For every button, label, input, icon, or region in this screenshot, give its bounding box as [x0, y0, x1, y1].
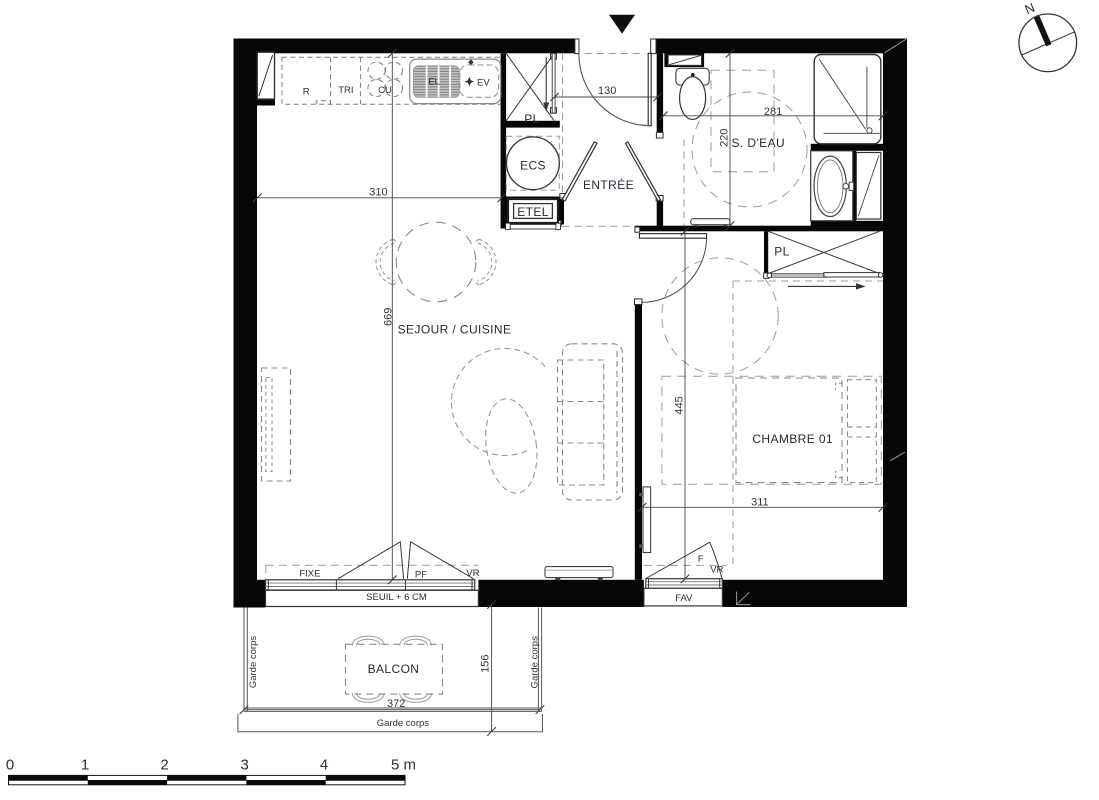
- svg-text:FAV: FAV: [675, 593, 693, 604]
- svg-text:SEUIL + 6 CM: SEUIL + 6 CM: [366, 592, 427, 603]
- svg-text:SEJOUR / CUISINE: SEJOUR / CUISINE: [398, 323, 512, 337]
- svg-text:310: 310: [369, 187, 387, 199]
- svg-text:ECS: ECS: [520, 159, 546, 173]
- svg-text:CHAMBRE 01: CHAMBRE 01: [752, 432, 833, 446]
- svg-text:2: 2: [160, 757, 168, 774]
- svg-text:ENTRÉE: ENTRÉE: [583, 177, 634, 192]
- svg-text:Garde corps: Garde corps: [377, 718, 430, 729]
- svg-text:669: 669: [382, 308, 394, 326]
- svg-text:3: 3: [241, 757, 249, 774]
- svg-text:Garde corps: Garde corps: [248, 636, 259, 689]
- svg-text:BALCON: BALCON: [368, 662, 420, 676]
- svg-text:CU: CU: [378, 85, 392, 96]
- svg-text:281: 281: [764, 106, 782, 118]
- svg-text:EV: EV: [477, 78, 490, 89]
- svg-text:R: R: [303, 87, 310, 98]
- svg-text:445: 445: [674, 396, 686, 414]
- svg-text:4: 4: [320, 757, 328, 774]
- svg-text:TRI: TRI: [338, 85, 353, 96]
- svg-text:220: 220: [719, 129, 731, 147]
- svg-text:130: 130: [598, 85, 616, 97]
- svg-text:ETEL: ETEL: [517, 205, 549, 219]
- svg-text:311: 311: [751, 496, 769, 508]
- svg-text:PL: PL: [524, 112, 539, 126]
- svg-text:1: 1: [81, 757, 89, 774]
- svg-text:VR: VR: [466, 568, 479, 579]
- svg-text:S. D'EAU: S. D'EAU: [732, 136, 786, 150]
- svg-text:F: F: [698, 554, 704, 565]
- svg-text:156: 156: [479, 655, 491, 673]
- svg-text:EL: EL: [428, 76, 440, 87]
- svg-text:PF: PF: [415, 570, 427, 581]
- svg-text:FIXE: FIXE: [299, 569, 320, 580]
- svg-text:5 m: 5 m: [391, 757, 416, 774]
- svg-text:372: 372: [387, 698, 405, 710]
- svg-text:Garde corps: Garde corps: [529, 636, 540, 689]
- svg-text:0: 0: [6, 757, 14, 774]
- svg-text:PL: PL: [774, 245, 789, 259]
- svg-text:VR: VR: [710, 564, 723, 575]
